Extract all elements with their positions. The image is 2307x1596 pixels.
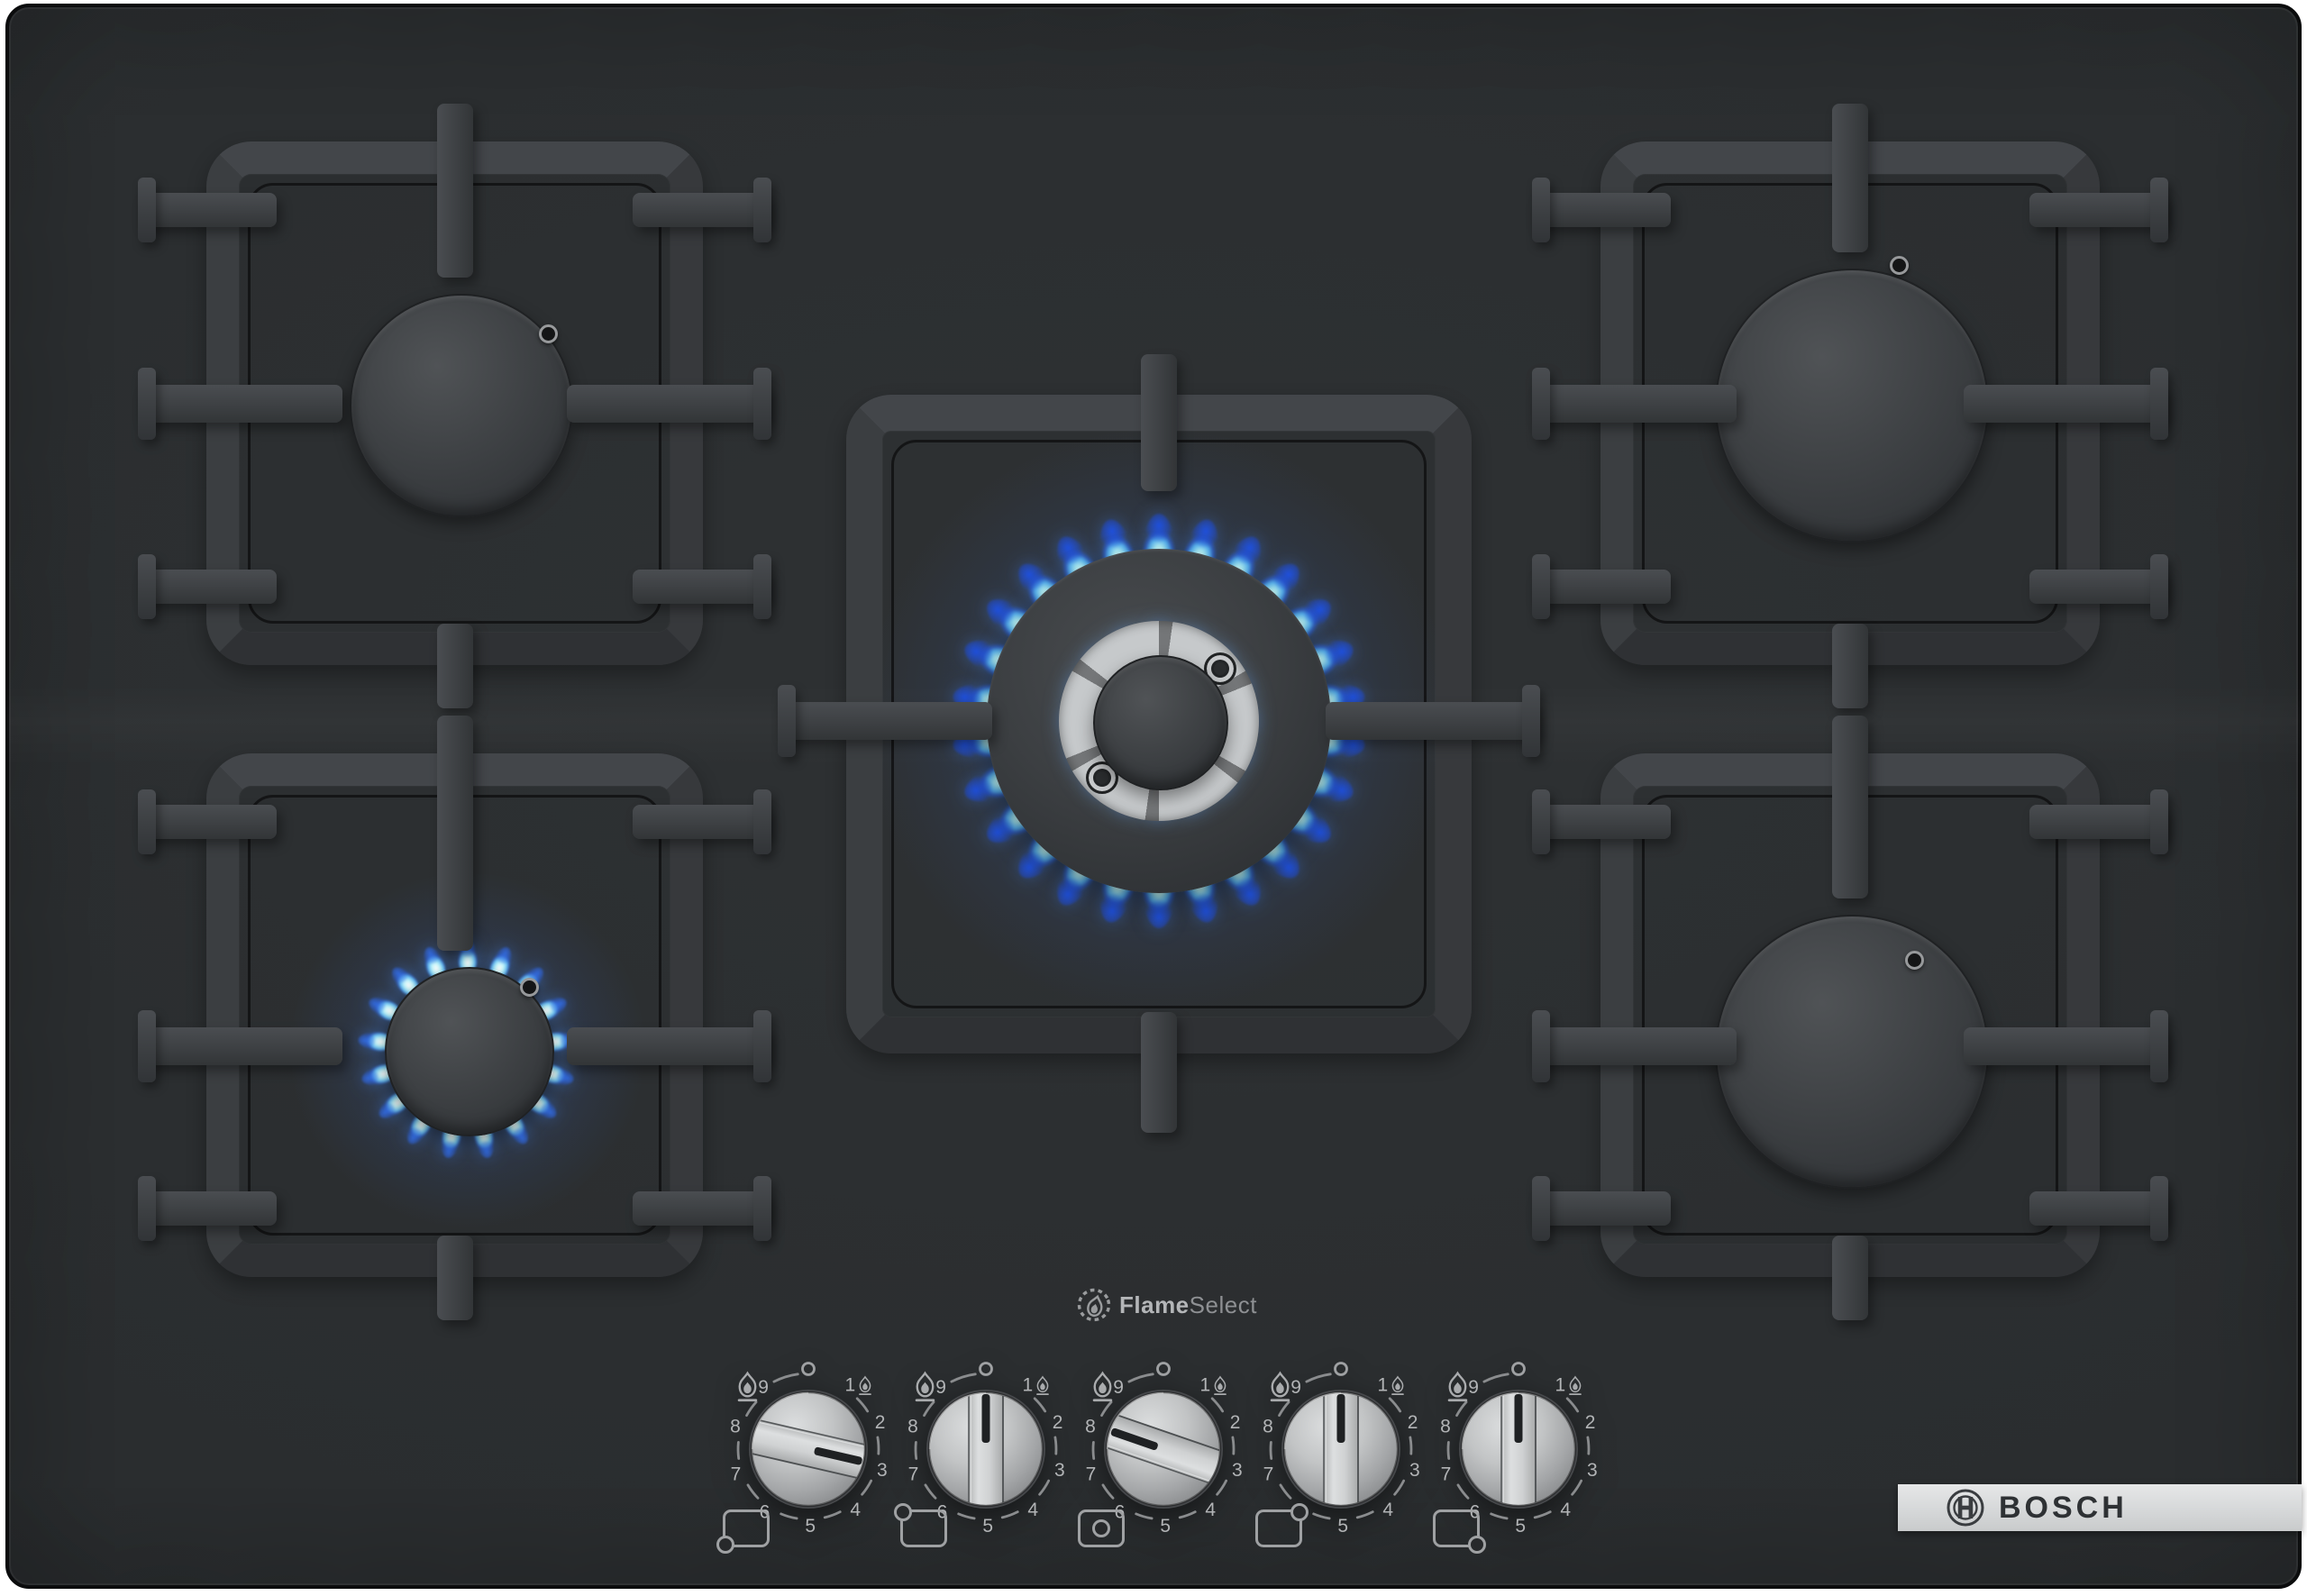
grate-bar-foot [138,178,156,242]
grate-bar-foot [2150,368,2168,440]
grate-bar [2029,193,2166,227]
knob-scale-arc [1055,1437,1056,1454]
knob-scale-number: 4 [1560,1500,1571,1520]
knob-off-mark [1513,1363,1525,1375]
knob-scale-number: 7 [908,1464,919,1484]
knob-scale-arc [1180,1512,1195,1518]
knob-scale-number: 1 [1022,1375,1033,1396]
knob-off-mark [1158,1363,1170,1375]
knob-scale-number: 9 [935,1377,946,1398]
pan-support-grate-back-right [1600,141,2100,665]
bosch-logo-bar: BOSCH [1898,1484,2302,1531]
grate-bar [140,193,277,227]
grate-bar-foot [1532,1176,1550,1241]
knob-scale-number: 3 [877,1460,888,1481]
burner-position-icon-front-right [1433,1509,1480,1547]
knob-scale-number: 2 [1230,1412,1241,1433]
knob-scale-number: 7 [1263,1464,1274,1484]
knob-scale-number: 2 [1408,1412,1418,1433]
grate-bar [2029,1191,2166,1226]
knob-scale-number: 9 [1113,1377,1124,1398]
knob-scale-number: 3 [1232,1460,1243,1481]
knob-scale-arc [1102,1402,1112,1416]
burner-position-dot [716,1536,734,1554]
knob-scale-arc [1410,1437,1411,1454]
grate-bar-foot [2150,1010,2168,1082]
grate-bar-foot [138,789,156,854]
grate-bar-foot [1532,1010,1550,1082]
grate-bar [633,570,770,604]
grate-bar [140,1027,342,1065]
flame-small-icon [1392,1377,1403,1394]
flame-large-icon [1272,1373,1289,1400]
knob-scale-number: 3 [1054,1460,1065,1481]
knob-scale-number: 8 [1440,1416,1451,1436]
knob-scale-number: 3 [1587,1460,1598,1481]
burner-position-dot [1290,1503,1309,1521]
grate-bar [1141,1012,1177,1133]
knob-scale-number: 9 [1290,1377,1301,1398]
grate-bar [2029,805,2166,839]
knob-scale-number: 2 [1053,1412,1063,1433]
grate-bar-foot [1532,368,1550,440]
grate-bar [1534,1027,1737,1065]
knob-off-mark [980,1363,992,1375]
grate-bar [1534,1191,1671,1226]
knob-scale-arc [1567,1399,1578,1411]
burner-position-dot [894,1503,912,1521]
grate-bar [437,104,473,278]
grate-bar [633,193,770,227]
flame-large-icon [916,1373,934,1400]
knob-scale-arc [1281,1485,1290,1498]
knob-scale-arc [1035,1399,1045,1411]
knob-scale-number: 9 [758,1377,769,1398]
bosch-wordmark: BOSCH [1999,1491,2128,1526]
knob-scale-arc [1458,1485,1468,1498]
pan-support-grate-front-right [1600,753,2100,1277]
grate-bar [2029,570,2166,604]
knob-scale-arc [1390,1399,1400,1411]
grate-bar [1832,104,1868,252]
knob-scale-number: 8 [730,1416,741,1436]
knob-scale-number: 4 [1205,1500,1216,1520]
pan-support-grate-center [846,395,1472,1053]
grate-bar [437,716,473,951]
flame-large-icon [1094,1373,1111,1400]
burner-position-icon-back-right [1255,1509,1302,1547]
grate-bar [437,1236,473,1320]
bosch-armature-icon [1945,1487,1986,1528]
knob-scale-number: 4 [1382,1500,1393,1520]
knob-scale-arc [1212,1399,1223,1411]
flameselect-logo: FlameSelect [1072,1283,1257,1327]
grate-bar-foot [2150,1176,2168,1241]
knob-scale-number: 1 [844,1375,855,1396]
knob-scale-arc [774,1374,798,1382]
pan-support-grate-back-left [206,141,703,665]
knob-scale-number: 9 [1468,1377,1479,1398]
knob-indicator [1337,1394,1345,1443]
knob-scale-number: 8 [1085,1416,1096,1436]
grate-bar [780,702,992,740]
knob-scale-arc [862,1481,871,1494]
grate-bar [1832,1236,1868,1320]
burner-position-dot [1468,1536,1486,1554]
grate-bar [1964,385,2166,423]
grate-bar-foot [138,1010,156,1082]
knob-scale-arc [781,1514,797,1518]
knob-front-left[interactable]: 123456789 [714,1354,903,1587]
flame-small-icon [1570,1377,1581,1394]
knob-grip [1324,1392,1358,1506]
knob-scale-number: 2 [875,1412,886,1433]
flame-large-icon [739,1373,756,1400]
knob-scale-arc [926,1485,935,1498]
knob-scale-arc [1280,1402,1290,1416]
knob-scale-arc [959,1514,974,1518]
knob-scale-arc [878,1437,879,1454]
grate-bar [567,385,770,423]
grate-bar [567,1027,770,1065]
knob-scale-number: 5 [1515,1516,1526,1537]
knob-grip [969,1392,1003,1506]
grate-bar [1534,193,1671,227]
flameselect-wordmark: FlameSelect [1119,1291,1257,1319]
grate-bar [140,570,277,604]
grate-bar-foot [753,554,771,619]
grate-bar-foot [753,178,771,242]
flame-large-icon [1449,1373,1466,1400]
burner-position-icon-back-left [900,1509,947,1547]
knob-center[interactable]: 123456789 [1069,1354,1258,1587]
grate-bar [437,624,473,708]
knob-scale-arc [748,1485,758,1498]
knob-scale-number: 5 [982,1516,993,1537]
grate-bar-foot [138,1176,156,1241]
knob-scale-number: 1 [1199,1375,1210,1396]
grate-bar [633,1191,770,1226]
knob-scale-arc [1491,1514,1507,1518]
grate-bar-foot [753,1176,771,1241]
knob-scale-number: 4 [850,1500,861,1520]
knob-scale-arc [1573,1481,1582,1494]
flame-small-icon [1037,1377,1048,1394]
knob-scale-number: 2 [1585,1412,1596,1433]
grate-bar-foot [753,789,771,854]
knob-scale-number: 1 [1555,1375,1565,1396]
grate-bar [1534,805,1671,839]
grate-bar [633,805,770,839]
grate-bar-foot [2150,178,2168,242]
knob-scale-arc [1002,1512,1017,1518]
flame-small-icon [860,1377,871,1394]
flameselect-regular: Select [1190,1291,1257,1318]
knob-scale-number: 1 [1377,1375,1388,1396]
grate-bar [140,805,277,839]
knob-scale-arc [952,1374,975,1382]
knob-scale-number: 7 [1086,1464,1097,1484]
grate-bar [1832,716,1868,898]
grate-bar [1534,570,1671,604]
burner-position-icon-front-left [723,1509,770,1547]
grate-bar-foot [1522,685,1540,757]
flame-small-icon [1215,1377,1226,1394]
knob-scale-arc [1233,1437,1234,1454]
knob-scale-number: 5 [805,1516,816,1537]
grate-bar [1832,624,1868,708]
grate-bar-foot [138,368,156,440]
knob-scale-arc [916,1442,916,1458]
knob-scale-arc [1307,1374,1330,1382]
knob-scale-arc [1136,1514,1152,1518]
grate-bar [1964,1027,2166,1065]
knob-back-left[interactable]: 123456789 [891,1354,1081,1587]
pan-support-grate-front-left [206,753,703,1277]
grate-bar-foot [2150,554,2168,619]
knob-scale-number: 7 [731,1464,742,1484]
knob-scale-number: 8 [1263,1416,1273,1436]
knob-scale-arc [857,1399,868,1411]
flame-in-dashed-circle-icon [1072,1283,1116,1327]
knob-scale-arc [1314,1514,1329,1518]
knob-scale-arc [1535,1512,1550,1518]
grate-bar-foot [778,685,796,757]
burner-position-dot [1092,1519,1110,1537]
grate-bar [140,1191,277,1226]
bosch-gas-hob: 123456789 [0,0,2307,1596]
knob-scale-arc [1103,1485,1113,1498]
knob-scale-arc [747,1402,757,1416]
knob-scale-arc [738,1442,739,1458]
knob-scale-number: 8 [907,1416,918,1436]
knob-scale-arc [1395,1481,1404,1494]
knob-scale-arc [1040,1481,1049,1494]
knob-scale-arc [825,1512,840,1518]
grate-bar-foot [753,368,771,440]
knob-scale-arc [1457,1402,1467,1416]
knob-scale-number: 3 [1409,1460,1420,1481]
grate-bar-foot [753,1010,771,1082]
knob-scale-arc [1129,1374,1153,1382]
knob-indicator [1515,1394,1523,1443]
knob-scale-arc [1357,1512,1372,1518]
knob-indicator [982,1394,990,1443]
knob-scale-number: 5 [1337,1516,1348,1537]
knob-scale-arc [1588,1437,1589,1454]
knob-scale-arc [1217,1481,1226,1494]
knob-scale-number: 7 [1441,1464,1452,1484]
knob-scale-arc [1448,1442,1449,1458]
grate-bar-foot [138,554,156,619]
knob-scale-arc [1093,1442,1094,1458]
knob-off-mark [803,1363,815,1375]
knob-scale-arc [1271,1442,1272,1458]
knob-scale-arc [925,1402,935,1416]
grate-bar-foot [1532,178,1550,242]
knob-front-right[interactable]: 123456789 [1424,1354,1613,1587]
grate-bar-foot [2150,789,2168,854]
knob-scale-number: 5 [1160,1516,1171,1537]
flameselect-bold: Flame [1119,1291,1190,1318]
knob-scale-arc [1484,1374,1508,1382]
burner-position-icon-center [1078,1509,1125,1547]
grate-bar [1534,385,1737,423]
grate-bar-foot [1532,554,1550,619]
grate-bar [1326,702,1538,740]
grate-bar [140,385,342,423]
knob-scale-number: 4 [1027,1500,1038,1520]
knob-back-right[interactable]: 123456789 [1246,1354,1436,1587]
grate-bar [1141,354,1177,491]
knob-grip [1501,1392,1536,1506]
grate-bar-foot [1532,789,1550,854]
knob-off-mark [1336,1363,1347,1375]
